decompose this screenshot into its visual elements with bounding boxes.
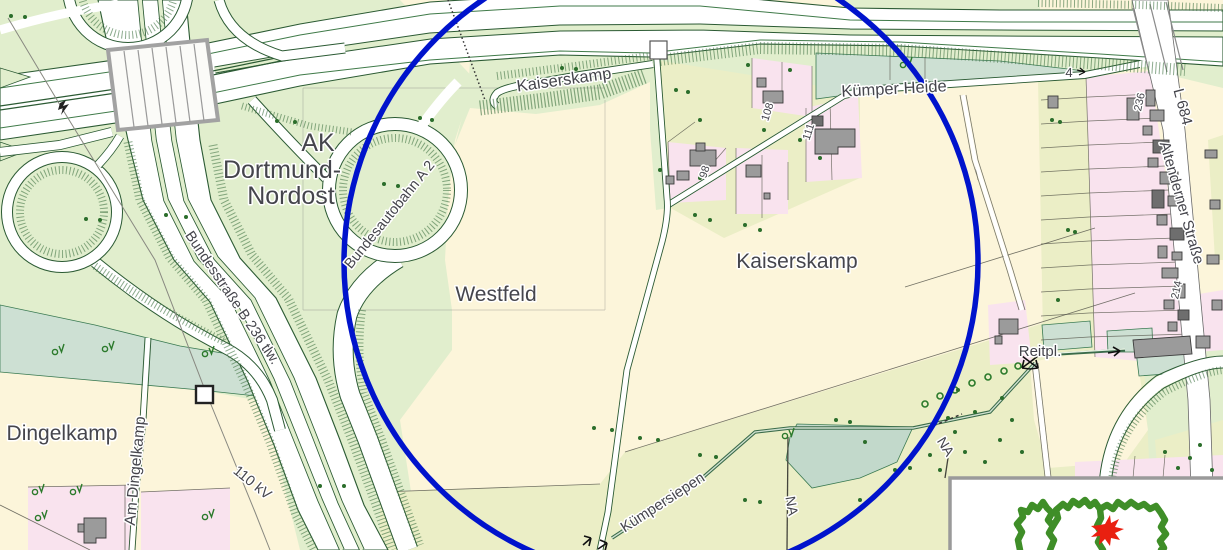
svg-text:AK: AK — [301, 129, 335, 157]
svg-text:Reitpl.: Reitpl. — [1019, 343, 1062, 360]
svg-text:Dingelkamp: Dingelkamp — [7, 422, 118, 445]
svg-text:Nordost: Nordost — [247, 182, 335, 210]
svg-text:4: 4 — [1065, 65, 1072, 80]
svg-text:Dortmund-: Dortmund- — [223, 156, 341, 184]
svg-text:Westfeld: Westfeld — [455, 283, 536, 306]
svg-text:Kaiserskamp: Kaiserskamp — [736, 250, 857, 273]
